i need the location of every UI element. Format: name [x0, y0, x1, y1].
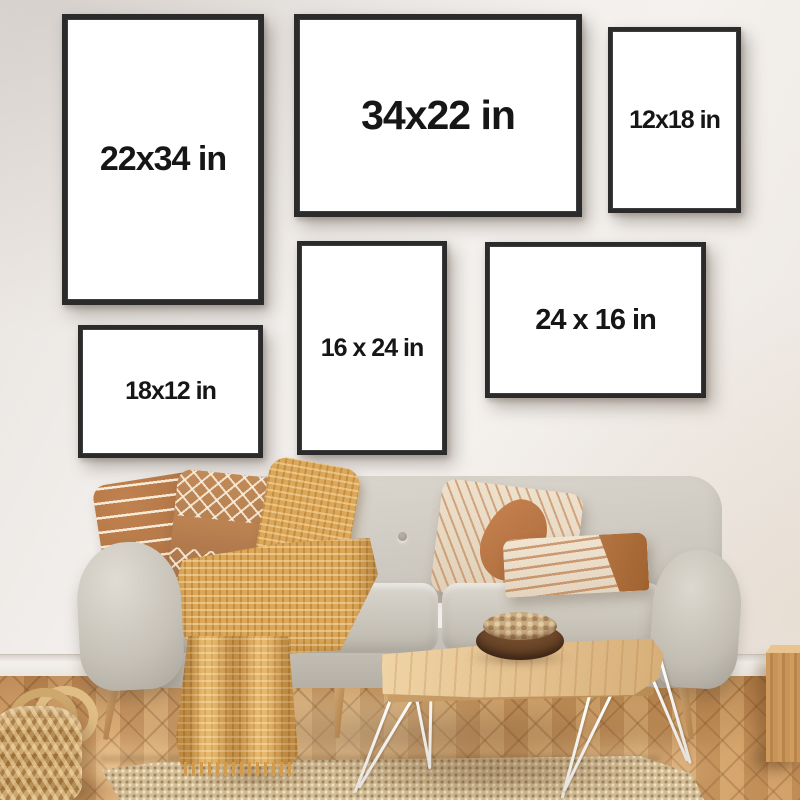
- woven-basket: [0, 706, 82, 800]
- pillow-corner: [580, 532, 649, 593]
- wood-block-stool: [766, 652, 800, 762]
- frame-22x34: 22x34 in: [62, 14, 264, 305]
- nuts: [483, 612, 557, 640]
- frame-size-label: 18x12 in: [125, 377, 216, 406]
- frame-12x18: 12x18 in: [608, 27, 741, 213]
- frame-size-label: 12x18 in: [629, 106, 720, 135]
- frame-size-label: 16 x 24 in: [321, 334, 424, 363]
- frame-16x24: 16 x 24 in: [297, 241, 447, 455]
- frame-18x12: 18x12 in: [78, 325, 263, 458]
- frame-24x16: 24 x 16 in: [485, 242, 706, 398]
- throw-blanket-hanging: [176, 636, 298, 766]
- sofa-tufting-button: [398, 532, 407, 541]
- frame-size-label: 24 x 16 in: [535, 304, 656, 337]
- living-room-photo: 22x34 in 34x22 in 12x18 in 16 x 24 in 24…: [0, 0, 800, 800]
- frame-size-label: 22x34 in: [100, 140, 226, 179]
- chevron-seat-pillow: [503, 532, 650, 597]
- blanket-fringe: [184, 762, 292, 776]
- frame-size-label: 34x22 in: [361, 92, 515, 139]
- sofa-arm-left: [74, 539, 186, 692]
- frame-34x22: 34x22 in: [294, 14, 582, 217]
